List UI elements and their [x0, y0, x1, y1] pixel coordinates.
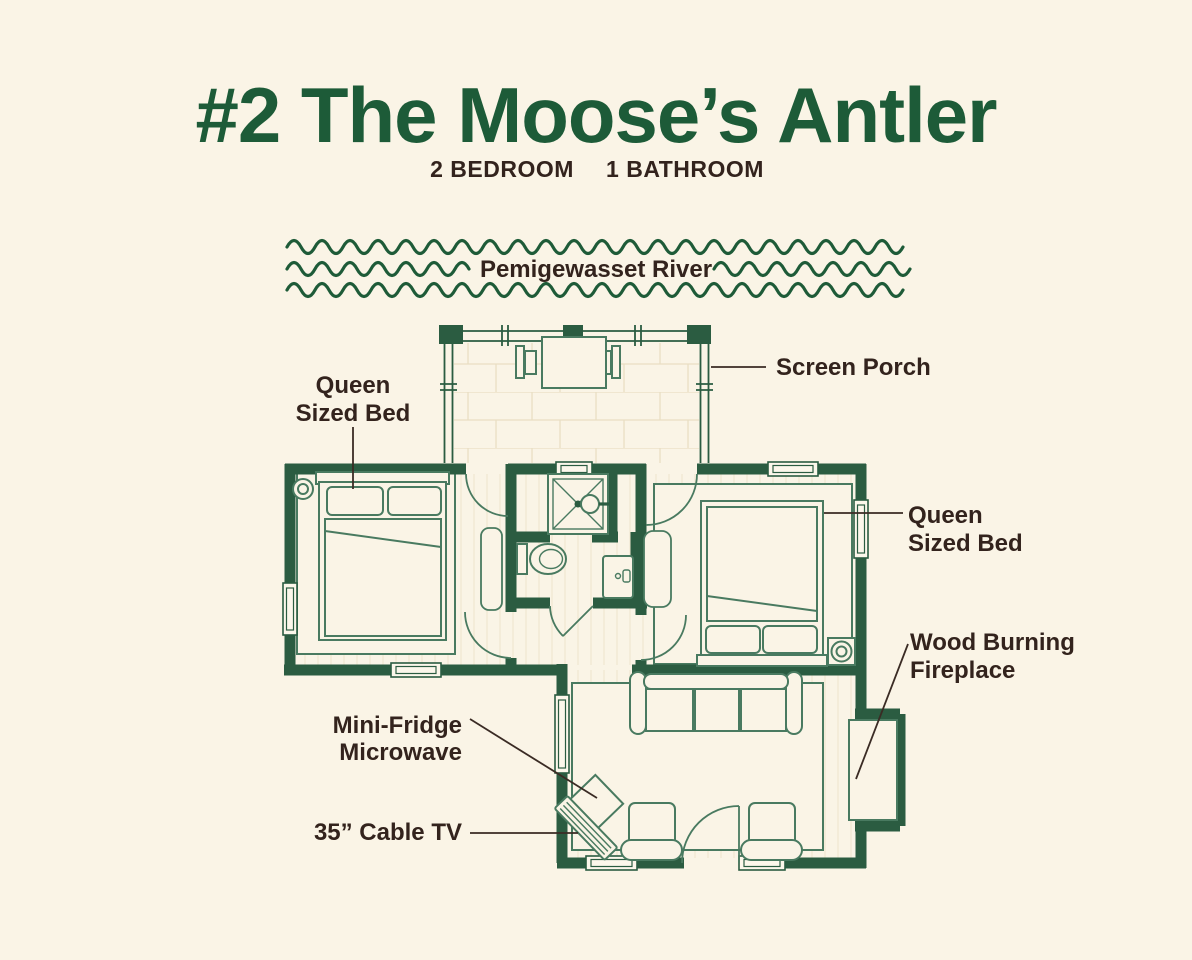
label-fireplace-line1: Wood Burning: [910, 629, 1075, 656]
floorplan-svg: #2 The Moose’s Antler 2 BEDROOM 1 BATHRO…: [0, 0, 1192, 960]
porch-chair-right-back: [612, 346, 620, 378]
bedside-lamp-inner: [298, 484, 308, 494]
pillow: [327, 487, 383, 515]
window: [555, 695, 569, 773]
headboard: [697, 655, 827, 666]
armchair: [741, 803, 802, 860]
subtitle-bathrooms: 1 BATHROOM: [606, 156, 764, 182]
porch-chair-left-back: [516, 346, 524, 378]
label-bed-left-line1: Queen: [316, 372, 391, 399]
floorplan-page: #2 The Moose’s Antler 2 BEDROOM 1 BATHRO…: [0, 0, 1192, 960]
label-bed-left-line2: Sized Bed: [296, 400, 411, 427]
porch-chair-left-seat: [525, 351, 536, 374]
sofa: [630, 672, 802, 734]
pillow: [763, 626, 817, 653]
subtitle-bedrooms: 2 BEDROOM: [430, 156, 574, 182]
label-fireplace-line2: Fireplace: [910, 657, 1015, 684]
label-kitchenette-line2: Microwave: [339, 739, 462, 766]
door-leaf: [644, 531, 671, 607]
toilet: [517, 544, 566, 574]
mattress: [325, 519, 441, 636]
window: [768, 462, 818, 476]
window: [283, 583, 297, 635]
shower: [548, 474, 613, 534]
door-leaf: [481, 528, 502, 610]
river-label: Pemigewasset River: [480, 256, 712, 283]
label-screen-porch: Screen Porch: [776, 354, 931, 381]
page-title: #2 The Moose’s Antler: [195, 71, 997, 159]
label-bed-right-line1: Queen: [908, 502, 983, 529]
armchair: [621, 803, 682, 860]
window: [854, 500, 868, 558]
window: [391, 663, 441, 677]
pillow: [388, 487, 441, 515]
label-bed-right-line2: Sized Bed: [908, 530, 1023, 557]
porch-table: [542, 337, 606, 388]
label-cable-tv: 35” Cable TV: [314, 819, 462, 846]
bedside-lamp-inner: [837, 647, 847, 657]
sofa-back: [644, 674, 788, 689]
vanity-sink: [603, 556, 633, 598]
sofa-cushion: [695, 689, 739, 731]
label-kitchenette-line1: Mini-Fridge: [333, 712, 462, 739]
sofa-cushion: [646, 689, 693, 731]
shower-head: [581, 495, 599, 513]
pillow: [706, 626, 760, 653]
sofa-cushion: [741, 689, 786, 731]
